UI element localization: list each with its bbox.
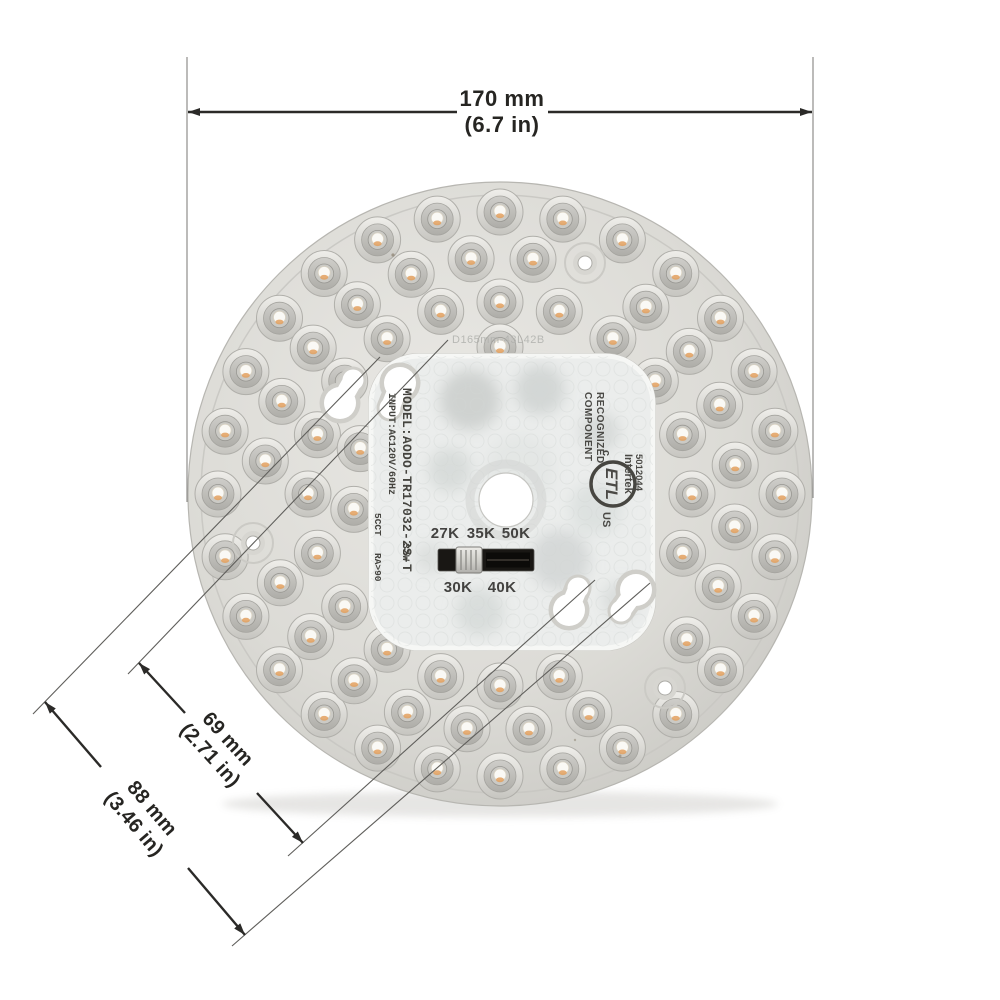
etl-c-text: c: [600, 450, 612, 456]
led-lens: [536, 288, 582, 334]
led-lens: [477, 189, 523, 235]
led-lens: [242, 438, 288, 484]
led-lens: [477, 753, 523, 799]
led-lens: [195, 471, 241, 517]
led-lens: [599, 725, 645, 771]
etl-us-text: US: [600, 512, 612, 527]
led-lens: [664, 617, 710, 663]
led-lens: [414, 196, 460, 242]
led-lens: [414, 746, 460, 792]
led-lens: [731, 349, 777, 395]
led-lens: [536, 654, 582, 700]
dimension-69-upper-segment: [139, 663, 185, 713]
etl-component-text: COMPONENT: [582, 392, 593, 462]
led-lens: [540, 196, 586, 242]
dimension-88-upper-segment: [45, 702, 101, 767]
led-lens: [448, 236, 494, 282]
led-lens: [257, 560, 303, 606]
led-lens: [695, 564, 741, 610]
diameter-mm-label: 170 mm: [460, 86, 545, 111]
etl-intertek-text: Intertek: [622, 454, 634, 495]
led-lens: [418, 288, 464, 334]
cct-label-35k: 35K: [467, 525, 495, 542]
led-lens: [566, 691, 612, 737]
cct-label-30k: 30K: [444, 579, 472, 596]
led-lens: [697, 382, 743, 428]
led-lens: [712, 504, 758, 550]
led-lens: [510, 236, 556, 282]
led-lens: [355, 725, 401, 771]
led-lens: [444, 706, 490, 752]
diagram-canvas: D165mm-43L42B: [0, 0, 1000, 1000]
led-lens: [759, 471, 805, 517]
cct-label-50k: 50K: [502, 525, 530, 542]
led-lens: [752, 534, 798, 580]
diffuser-print-text: D165mm-43L42B: [452, 334, 545, 346]
led-lens: [294, 530, 340, 576]
led-lens: [540, 746, 586, 792]
cct-label-40k: 40K: [488, 579, 516, 596]
etl-logo-icon: ETL: [602, 468, 621, 500]
led-lens: [418, 654, 464, 700]
product-dimension-diagram: D165mm-43L42B: [0, 0, 1000, 1000]
led-lens: [731, 593, 777, 639]
cct-switch-knob: [456, 547, 482, 573]
led-lens: [202, 408, 248, 454]
led-lens: [599, 217, 645, 263]
cct-label-27k: 27K: [431, 525, 459, 542]
led-lens: [384, 689, 430, 735]
input-text: INPUT:AC120V/60Hz: [385, 393, 397, 495]
etl-number-text: 5012044: [633, 454, 644, 492]
led-lens: [477, 663, 523, 709]
led-lens: [712, 442, 758, 488]
led-lens: [364, 316, 410, 362]
diameter-in-label: (6.7 in): [465, 112, 540, 137]
led-module: D165mm-43L42B: [188, 182, 812, 817]
wattage-text: 32W: [399, 543, 410, 561]
led-lens: [285, 471, 331, 517]
led-lens: [752, 408, 798, 454]
led-lens: [660, 530, 706, 576]
led-lens: [660, 412, 706, 458]
led-lens: [322, 584, 368, 630]
led-lens: [388, 251, 434, 297]
cri-text: RA>90: [372, 553, 383, 582]
dimension-88-lower-segment: [188, 868, 245, 935]
led-lens: [506, 706, 552, 752]
led-lens: [259, 378, 305, 424]
led-lens: [477, 279, 523, 325]
led-lens: [669, 471, 715, 517]
cct-text: 5CCT: [372, 513, 383, 536]
led-lens: [223, 593, 269, 639]
led-lens: [223, 349, 269, 395]
center-wire-hole: [479, 473, 533, 527]
